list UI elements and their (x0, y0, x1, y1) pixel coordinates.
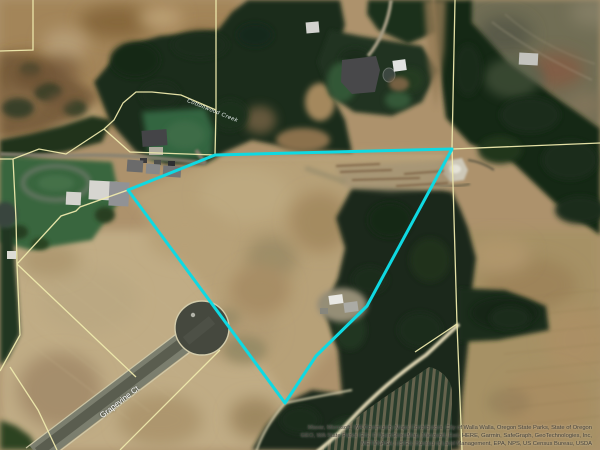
svg-text:METI/NASA, USGS, Bureau of Lan: METI/NASA, USGS, Bureau of Land Manageme… (361, 441, 592, 447)
svg-text:GEO, WA State Parks GIS, © Ope: GEO, WA State Parks GIS, © OpenStreetMap… (301, 432, 593, 439)
svg-text:Maxar, Microsoft, WA Community: Maxar, Microsoft, WA Community Maps Cont… (308, 425, 592, 431)
